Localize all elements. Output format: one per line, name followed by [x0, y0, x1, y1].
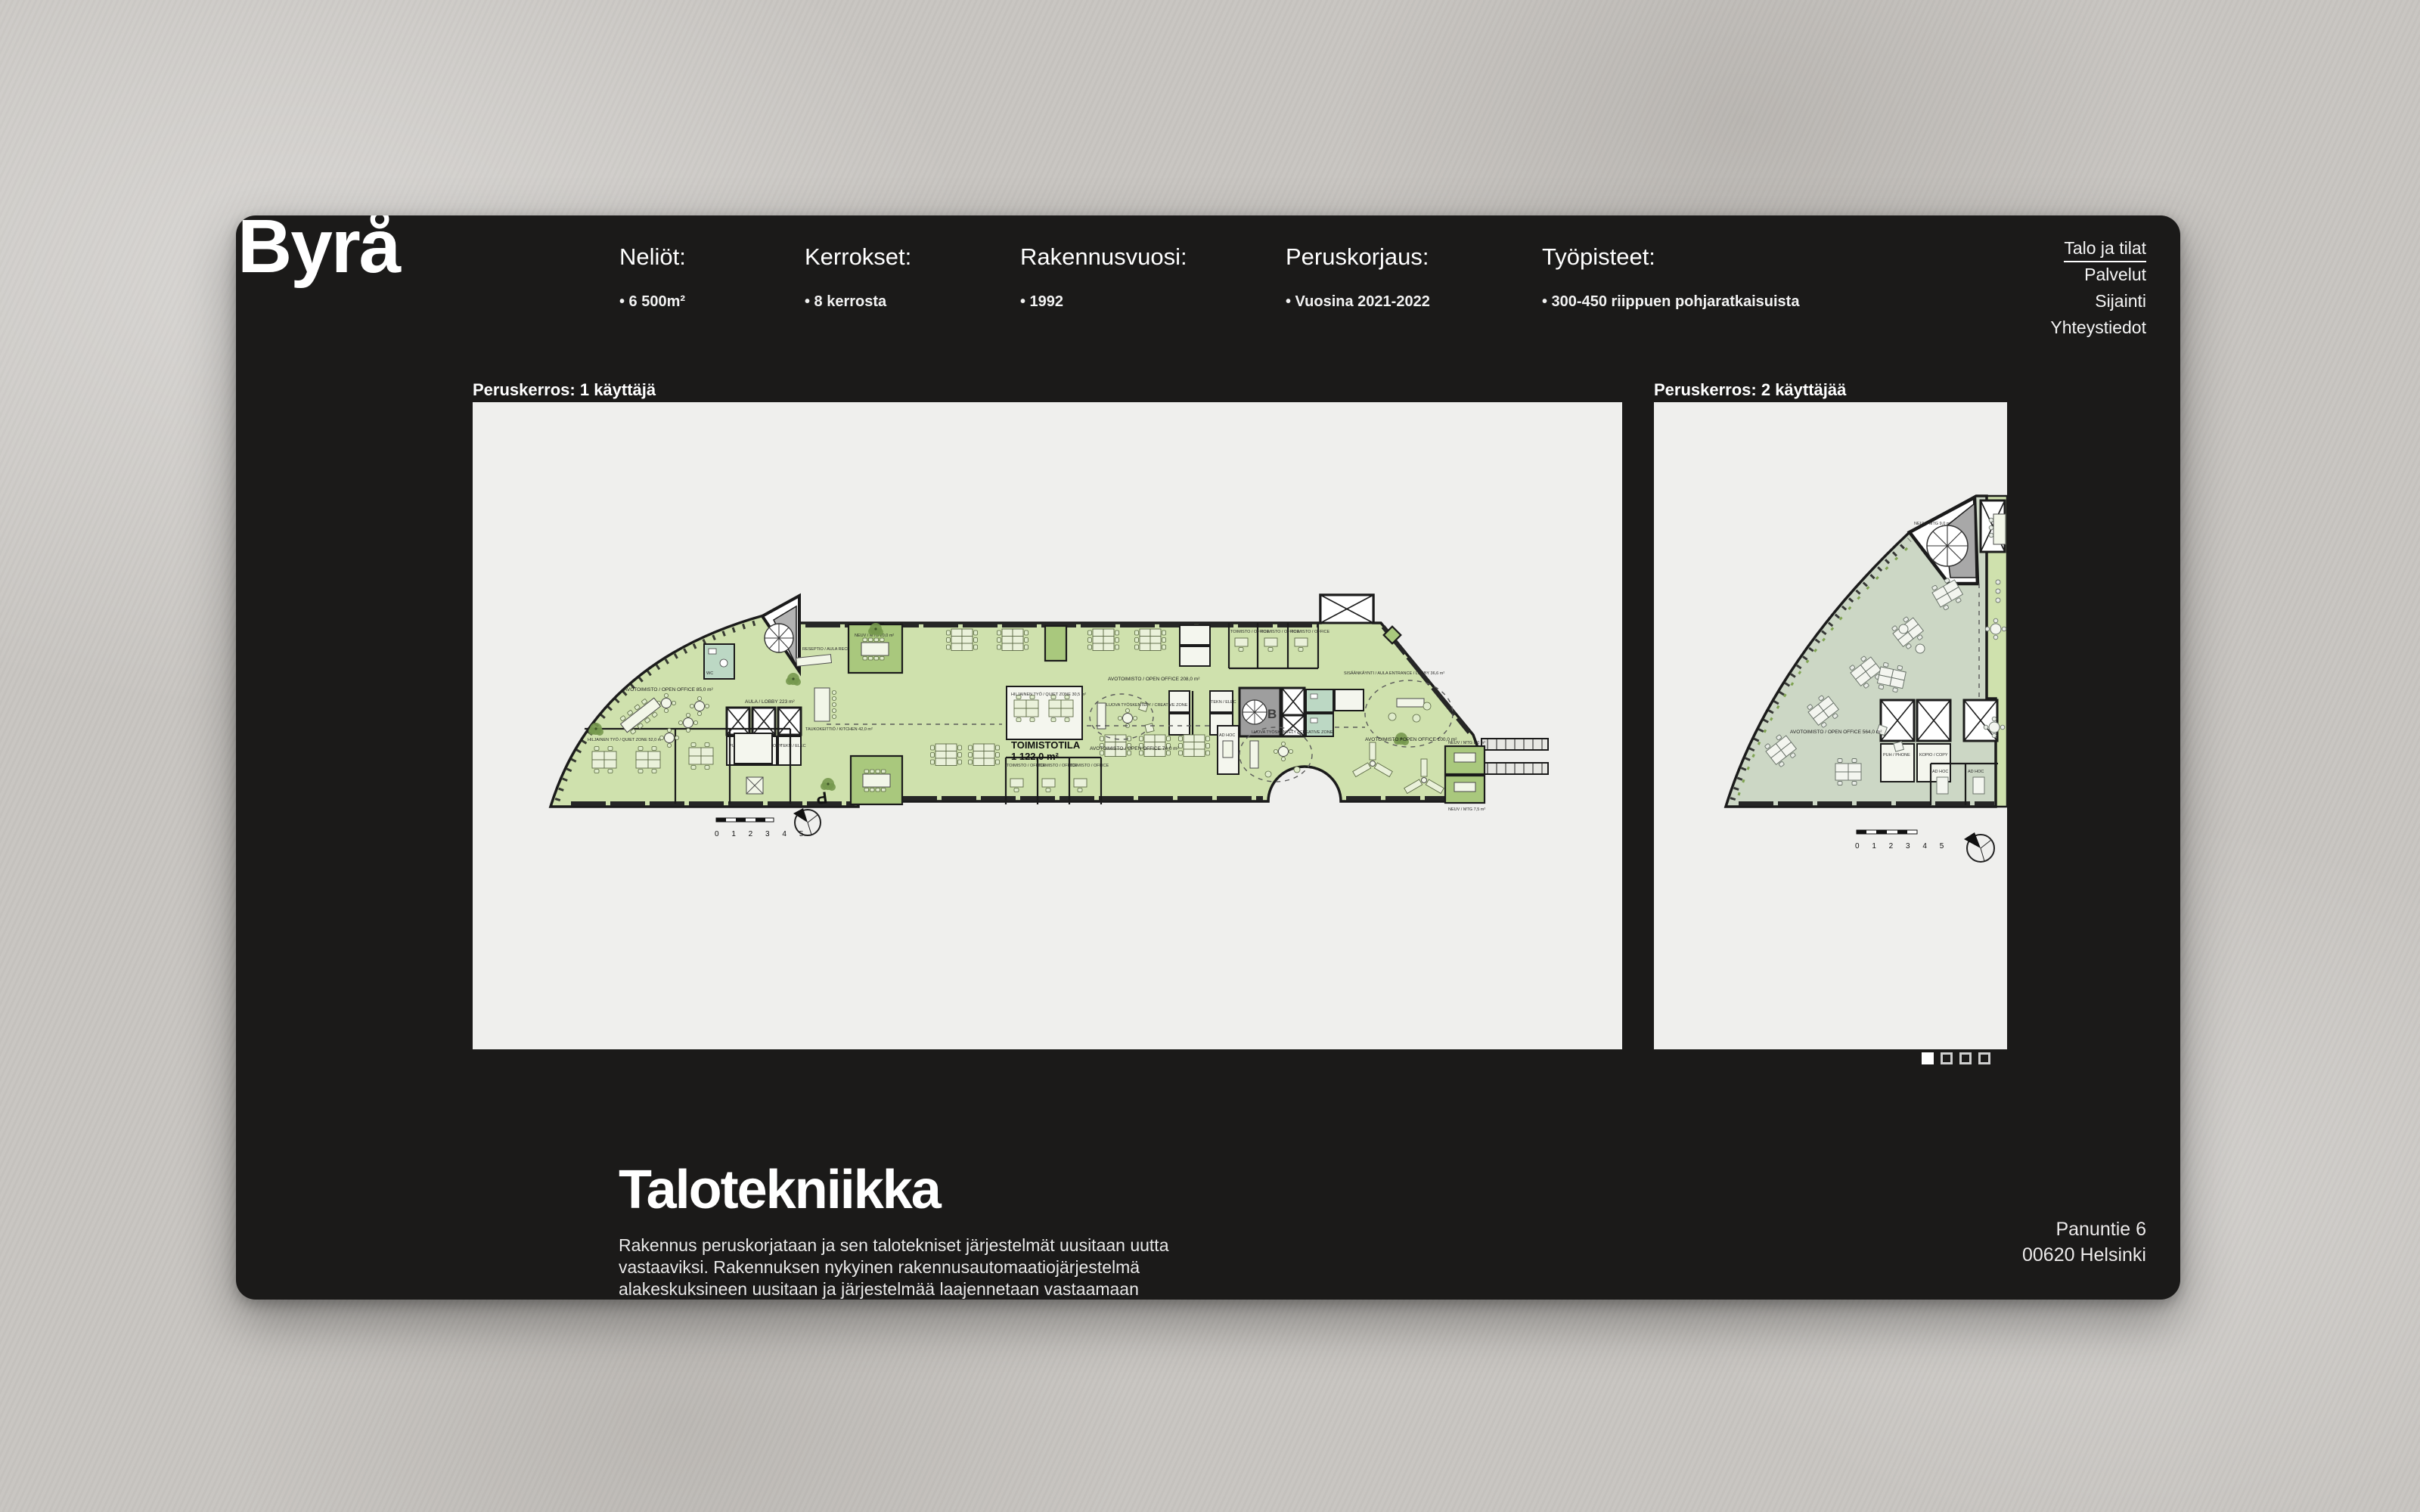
svg-text:TEKN / ELEC: TEKN / ELEC: [780, 744, 806, 748]
open-office-label-2: AVOTOIMISTO / OPEN OFFICE 564,0 m²: [1790, 730, 1882, 735]
svg-text:HILJAINEN TYÖ / QUIET ZONE 30,: HILJAINEN TYÖ / QUIET ZONE 30,5 m²: [1011, 692, 1086, 697]
stat-label: Peruskorjaus:: [1286, 243, 1430, 271]
nav-item-palvelut[interactable]: Palvelut: [2050, 262, 2146, 288]
svg-text:TOIMISTOTILA: TOIMISTOTILA: [1011, 739, 1081, 751]
stat-tyopisteet: Työpisteet: • 300-450 riippuen pohjaratk…: [1542, 243, 1799, 311]
plan-caption-1: Peruskerros: 1 käyttäjä: [473, 380, 656, 400]
svg-text:AD HOC: AD HOC: [1219, 733, 1235, 738]
section-paragraph: Rakennus peruskorjataan ja sen talotekni…: [619, 1235, 1235, 1300]
svg-text:AD HOC: AD HOC: [1968, 770, 1984, 774]
svg-text:AULA / LOBBY 223 m²: AULA / LOBBY 223 m²: [745, 699, 795, 705]
svg-text:PUH / PHONE: PUH / PHONE: [1883, 753, 1910, 758]
svg-text:SISÄÄNKÄYNTI / AULA ENTRANCE /: SISÄÄNKÄYNTI / AULA ENTRANCE / LOBBY 36,…: [1344, 671, 1444, 676]
main-nav: Talo ja tilat Palvelut Sijainti Yhteysti…: [2050, 235, 2146, 341]
svg-text:TEKN / ELEC: TEKN / ELEC: [1211, 700, 1236, 705]
stat-label: Neliöt:: [619, 243, 686, 271]
floor-plan-slide-1[interactable]: PUH / PHONE KOPIO / COPY TEKN / ELEC WC …: [473, 402, 1622, 1049]
address-line-1: Panuntie 6: [2022, 1216, 2146, 1242]
svg-text:WC: WC: [706, 671, 713, 676]
stat-peruskorjaus: Peruskorjaus: • Vuosina 2021-2022: [1286, 243, 1430, 311]
svg-text:TOIMISTO / OFFICE: TOIMISTO / OFFICE: [1291, 630, 1329, 634]
svg-text:AVOTOIMISTO / OPEN OFFICE 74,0: AVOTOIMISTO / OPEN OFFICE 74,0 m²: [1090, 746, 1180, 751]
svg-text:NEUV / MTG 7,5 m²: NEUV / MTG 7,5 m²: [1448, 807, 1485, 812]
meeting-rooms-right: NEUV / MTG 8,0 m² NEUV / MTG 7,5 m²: [1445, 741, 1485, 812]
quiet-room-center: HILJAINEN TYÖ / QUIET ZONE 30,5 m²: [1007, 686, 1086, 739]
pagination-dot-3[interactable]: [1959, 1052, 1972, 1064]
meeting-room-bottom: [851, 756, 902, 804]
svg-text:TAUKOKEITTIÖ / KITCHEN 42,0 m²: TAUKOKEITTIÖ / KITCHEN 42,0 m²: [805, 727, 873, 732]
stat-value: • 300-450 riippuen pohjaratkaisuista: [1542, 293, 1799, 311]
elevator-top-right: [1320, 595, 1373, 623]
svg-text:0 1 2 3 4 5: 0 1 2 3 4 5: [1855, 842, 1949, 850]
carousel-pagination: [1922, 1052, 1990, 1064]
nav-item-talo-ja-tilat[interactable]: Talo ja tilat: [2050, 235, 2146, 262]
stat-kerrokset: Kerrokset: • 8 kerrosta: [805, 243, 911, 311]
nav-item-sijainti[interactable]: Sijainti: [2050, 288, 2146, 314]
floor-plan-slide-2[interactable]: NEUV / MTG 9,0 m² PUH / PHONE KOPIO / CO…: [1654, 402, 2007, 1049]
floor-plan-1: PUH / PHONE KOPIO / COPY TEKN / ELEC WC …: [473, 402, 1622, 1049]
svg-text:AVOTOIMISTO / OPEN OFFICE 100,: AVOTOIMISTO / OPEN OFFICE 100,0 m²: [1365, 737, 1457, 742]
stat-rakennusvuosi: Rakennusvuosi: • 1992: [1020, 243, 1187, 311]
svg-text:LUOVA TYÖSKENTELY / CREATIVE Z: LUOVA TYÖSKENTELY / CREATIVE ZONE: [1252, 730, 1333, 735]
svg-text:NEUV / MTG 9,0 m²: NEUV / MTG 9,0 m²: [1914, 522, 1951, 526]
content-card: Byrå Neliöt: • 6 500m² Kerrokset: • 8 ke…: [236, 215, 2180, 1300]
svg-text:LUOVA TYÖSKENTELY / CREATIVE Z: LUOVA TYÖSKENTELY / CREATIVE ZONE: [1106, 702, 1188, 708]
stat-value: • Vuosina 2021-2022: [1286, 293, 1430, 311]
section-title: Talotekniikka: [619, 1160, 940, 1220]
svg-text:AVOTOIMISTO / OPEN OFFICE 85,0: AVOTOIMISTO / OPEN OFFICE 85,0 m²: [624, 687, 714, 692]
pagination-dot-4[interactable]: [1978, 1052, 1990, 1064]
svg-text:B: B: [1267, 707, 1277, 721]
svg-text:KOPIO / COPY: KOPIO / COPY: [1919, 753, 1948, 758]
stat-neliot: Neliöt: • 6 500m²: [619, 243, 686, 311]
stat-label: Työpisteet:: [1542, 243, 1799, 271]
pagination-dot-2[interactable]: [1941, 1052, 1953, 1064]
plan-caption-2: Peruskerros: 2 käyttäjää: [1654, 380, 1846, 400]
page-background: Byrå Neliöt: • 6 500m² Kerrokset: • 8 ke…: [0, 0, 2420, 1512]
floor-plan-2: NEUV / MTG 9,0 m² PUH / PHONE KOPIO / CO…: [1654, 402, 2007, 1049]
stat-label: Rakennusvuosi:: [1020, 243, 1187, 271]
svg-text:TOIMISTO / OFFICE: TOIMISTO / OFFICE: [1070, 764, 1109, 768]
brand-logo[interactable]: Byrå: [237, 215, 399, 288]
pagination-dot-1[interactable]: [1922, 1052, 1934, 1064]
svg-text:AD HOC: AD HOC: [1932, 770, 1948, 774]
address-line-2: 00620 Helsinki: [2022, 1242, 2146, 1268]
svg-text:1 122,0 m²: 1 122,0 m²: [1011, 751, 1060, 762]
stat-value: • 1992: [1020, 293, 1187, 311]
stat-value: • 6 500m²: [619, 293, 686, 311]
svg-text:0 1 2 3 4 5: 0 1 2 3 4 5: [715, 830, 808, 838]
nav-item-yhteystiedot[interactable]: Yhteystiedot: [2050, 314, 2146, 341]
svg-text:AVOTOIMISTO / OPEN OFFICE 208,: AVOTOIMISTO / OPEN OFFICE 208,0 m²: [1108, 677, 1200, 682]
address-block: Panuntie 6 00620 Helsinki: [2022, 1216, 2146, 1268]
stat-value: • 8 kerrosta: [805, 293, 911, 311]
wc-room-left: WC: [704, 644, 734, 679]
adhoc-room: AD HOC: [1218, 726, 1239, 774]
stat-label: Kerrokset:: [805, 243, 911, 271]
stair-core-b: B: [1239, 688, 1305, 736]
svg-text:HILJAINEN TYÖ / QUIET ZONE 52,: HILJAINEN TYÖ / QUIET ZONE 52,0 m²: [588, 737, 662, 742]
